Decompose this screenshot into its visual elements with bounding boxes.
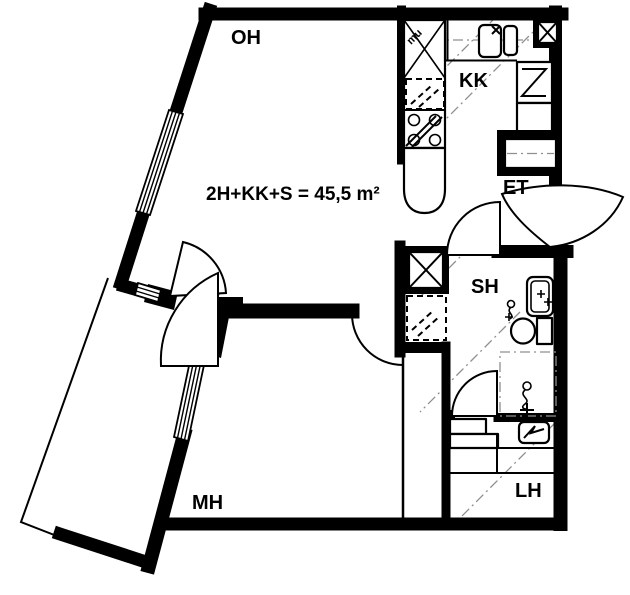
lh-fixtures: [447, 419, 557, 473]
lh-door-leaf: [452, 371, 497, 416]
kitchen-fixtures: [404, 17, 562, 213]
room-label-et: ET: [503, 177, 529, 199]
window-balcony-side: [135, 283, 161, 302]
freezer: [517, 103, 552, 132]
sauna-heater: [519, 422, 549, 443]
wall-diagonal-oh-upper: [176, 10, 209, 112]
wall-stub-sh: [403, 342, 450, 353]
balcony-railing: [21, 278, 108, 538]
wall-diagonal-mh-lower: [149, 435, 184, 566]
wall-balcony-outer: [60, 534, 146, 562]
wall-diagonal-oh-lower: [121, 211, 144, 283]
sauna-bench-low: [450, 434, 498, 448]
duct-box-sh: [409, 252, 443, 288]
kk-sink-basin-left: [479, 25, 501, 57]
toilet: [511, 318, 552, 344]
room-label-mh: MH: [192, 492, 223, 514]
duct-box-kk: [533, 17, 562, 48]
counter-end: [404, 148, 445, 213]
apartment-area-label: 2H+KK+S = 45,5 m²: [206, 184, 380, 205]
room-label-sh: SH: [471, 276, 499, 298]
et-closet: [497, 130, 562, 176]
shower: [500, 352, 556, 417]
floor-plan-page: OH KK ET SH MH LH 2H+KK+S = 45,5 m² mu: [0, 0, 630, 595]
room-label-oh: OH: [231, 27, 261, 49]
washer-reservation: [407, 296, 446, 340]
room-label-kk: KK: [459, 70, 488, 92]
washbasin: [505, 277, 553, 321]
window-oh: [136, 110, 183, 215]
sh-door-leaf: [447, 202, 500, 255]
room-label-lh: LH: [515, 480, 542, 502]
kk-sink-basin-right: [504, 26, 517, 55]
floor-plan-drawing: OH KK ET SH MH LH 2H+KK+S = 45,5 m² mu: [0, 0, 630, 595]
sauna-bench-step: [450, 419, 486, 434]
